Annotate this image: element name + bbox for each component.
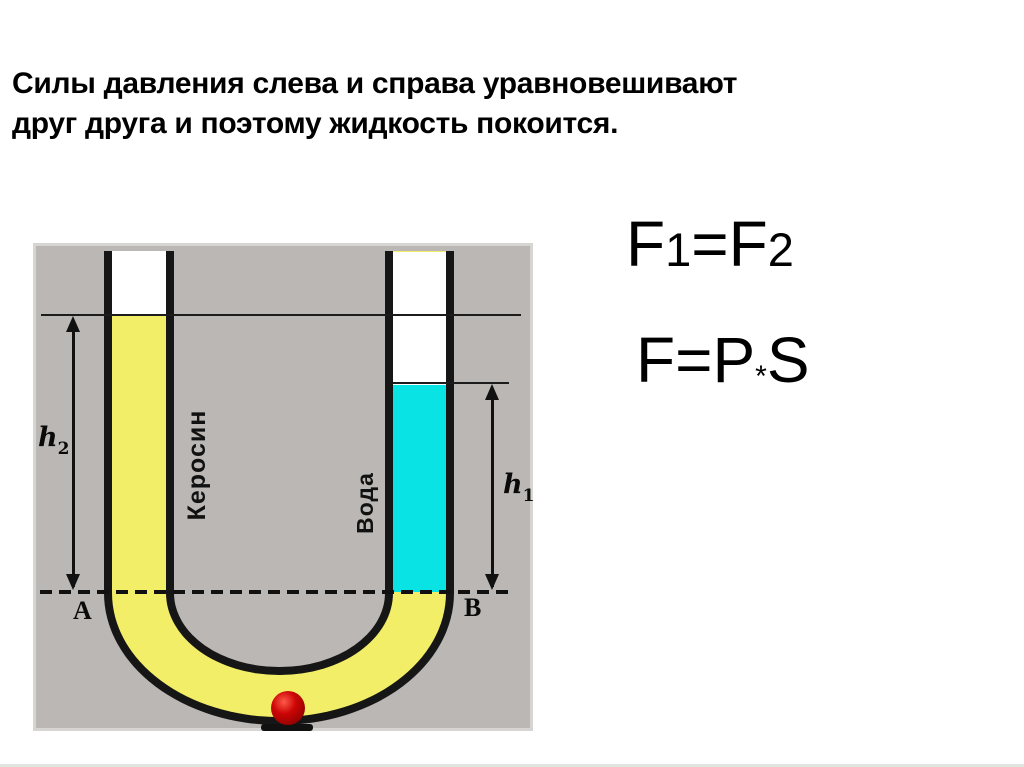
h1-down-arrowhead-icon [485,574,499,590]
h2-height-label: h2 [38,424,69,458]
presentation-slide: Силы давления слева и справа уравновешив… [0,0,1024,767]
slide-title-line2: друг друга и поэтому жидкость покоится. [12,104,737,144]
water-column [393,385,446,592]
u-tube-diagram-panel: h2 h1 A B Керосин Вода [33,243,533,731]
red-ball [271,691,305,725]
kerosene-level-line [41,314,521,316]
formula-f-letter: F [636,324,675,396]
ball-shadow [261,724,313,731]
formula-def-equals-sign: = [675,324,712,396]
h1-letter: h [503,469,523,500]
formula-f2-subscript: 2 [768,223,794,276]
formula-force-definition: F=P*S [636,328,810,392]
kerosene-liquid-label: Керосин [185,395,213,535]
water-liquid-label: Вода [354,453,380,553]
left-tube-empty-section [112,251,166,316]
formula-p-letter: P [712,324,755,396]
h1-dimension-line [491,392,494,587]
slide-title: Силы давления слева и справа уравновешив… [12,64,737,144]
slide-title-line1: Силы давления слева и справа уравновешив… [12,64,737,104]
point-a-label: A [73,598,92,624]
h1-height-label: h1 [503,471,534,505]
h2-down-arrowhead-icon [66,574,80,590]
h2-subscript: 2 [58,439,70,459]
h2-letter: h [38,422,58,453]
point-b-label: B [464,595,481,621]
formula-s-letter: S [767,324,810,396]
formula-f1-subscript: 1 [665,223,691,276]
formula-equals-sign: = [691,208,728,280]
equal-pressure-dashed-line [40,590,509,594]
h2-up-arrowhead-icon [66,316,80,332]
formula-f1-letter: F [626,208,665,280]
right-tube-empty-section [393,252,446,385]
formula-f2-letter: F [729,208,768,280]
formula-force-equality: F1=F2 [626,212,794,276]
multiply-asterisk: * [755,360,767,393]
h2-dimension-line [72,324,75,587]
h1-subscript: 1 [523,486,535,506]
h1-up-arrowhead-icon [485,384,499,400]
